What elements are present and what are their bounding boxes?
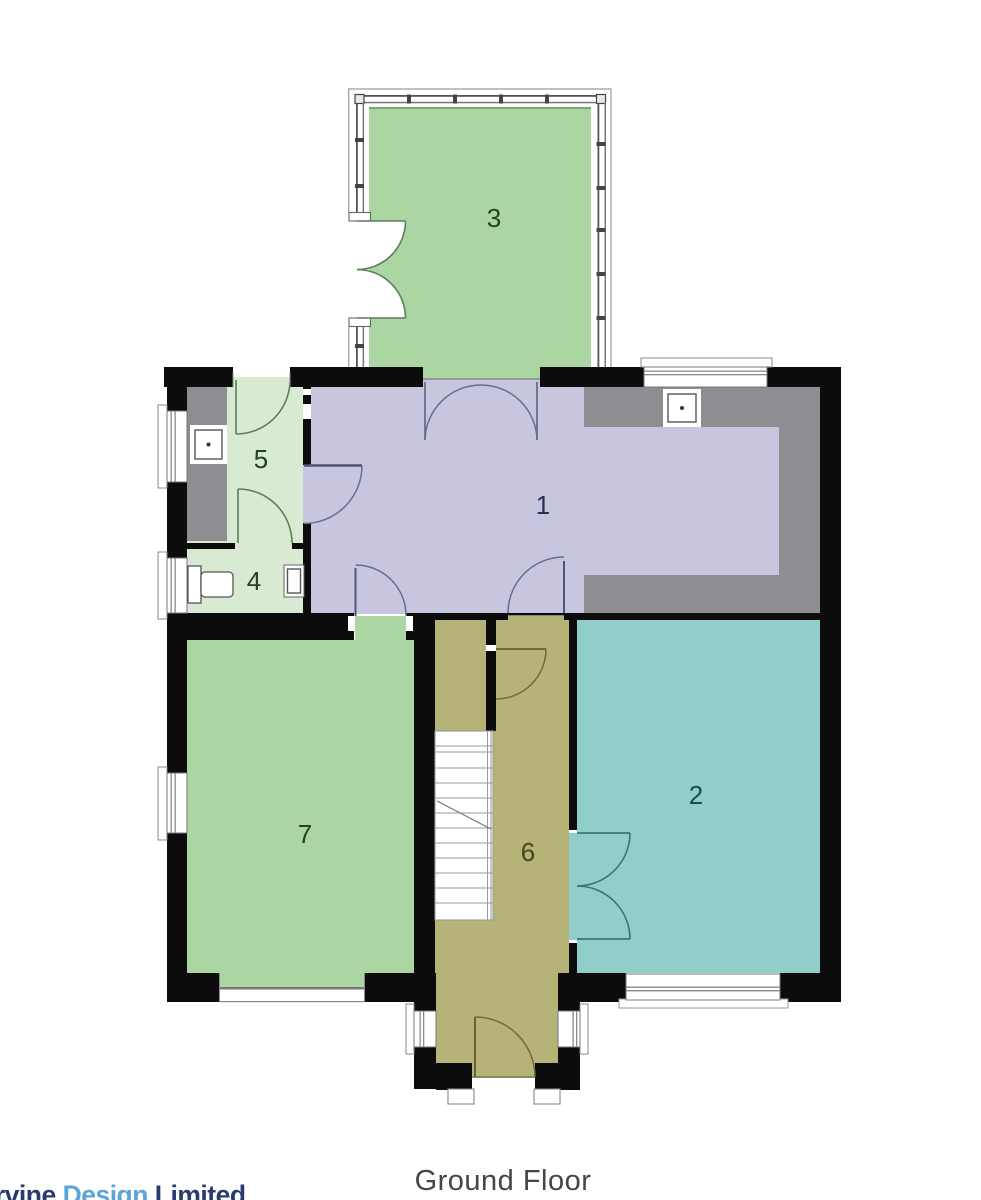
- svg-text:6: 6: [521, 837, 535, 867]
- svg-text:3: 3: [487, 203, 501, 233]
- svg-text:4: 4: [247, 566, 261, 596]
- svg-text:1: 1: [536, 490, 550, 520]
- svg-text:Ground Floor: Ground Floor: [415, 1165, 592, 1197]
- svg-text:5: 5: [254, 444, 268, 474]
- svg-text:7: 7: [298, 819, 312, 849]
- svg-text:2: 2: [689, 780, 703, 810]
- svg-text:Irvine Design Limited: Irvine Design Limited: [0, 1180, 246, 1200]
